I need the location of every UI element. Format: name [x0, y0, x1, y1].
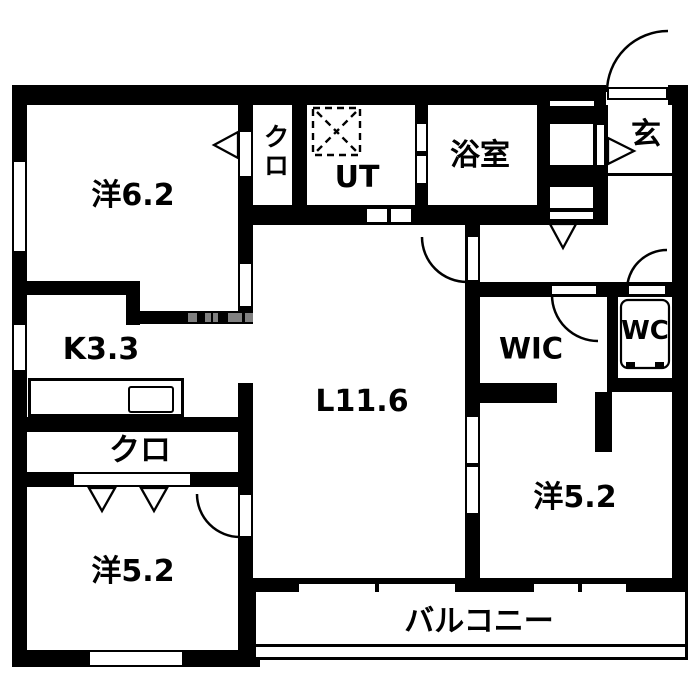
door-leaf — [238, 262, 253, 308]
door-leaf — [72, 472, 192, 487]
door-leaf — [389, 207, 413, 224]
entrance-door-arc — [607, 31, 668, 92]
door-leaf — [238, 130, 253, 178]
washing-machine-icon — [317, 112, 356, 151]
door-leaf — [415, 154, 428, 185]
room-label-entrance: 玄 — [631, 120, 661, 150]
opening-hatch-tick — [188, 313, 197, 322]
room-label-toilet: WC — [621, 318, 669, 344]
room-label-walk-in-closet: WIC — [499, 335, 563, 364]
door-leaf — [365, 207, 389, 224]
wall-segment — [595, 392, 612, 452]
door-leaf — [548, 210, 595, 221]
balcony-rail-line — [256, 644, 685, 647]
room-label-western-5-2-left: 洋5.2 — [91, 557, 174, 587]
door-leaf — [465, 415, 480, 465]
room-label-western-6-2: 洋6.2 — [91, 181, 174, 211]
floor-plan: 洋6.2 クロ UT 浴室 玄 K3.3 L11.6 WIC WC クロ 洋5.… — [0, 0, 700, 700]
room-label-kitchen: K3.3 — [63, 335, 139, 365]
bedroom-left-door-arc — [197, 494, 240, 537]
door-leaf — [465, 465, 480, 515]
wall-segment — [607, 378, 672, 392]
opening-hatch-tick — [213, 313, 218, 322]
opening-hatch-tick — [228, 313, 242, 322]
door-leaf — [548, 122, 595, 167]
window — [12, 160, 27, 253]
wall-segment — [27, 281, 140, 295]
wall-segment — [607, 173, 672, 176]
window — [88, 650, 184, 667]
door-leaf — [466, 235, 480, 282]
kitchen-sink — [128, 386, 174, 413]
washing-machine-icon — [317, 112, 356, 151]
wall-segment — [126, 281, 140, 325]
door-leaf — [415, 122, 428, 153]
toilet-icon — [626, 362, 635, 368]
closet-upper-door-triangle-icon — [214, 132, 238, 158]
hall-living-door-arc — [422, 237, 467, 282]
toilet-icon — [655, 362, 664, 368]
door-leaf — [627, 284, 667, 296]
wall-segment — [27, 417, 253, 432]
wall-segment — [672, 85, 688, 648]
closet-lower-fold-triangle-icon — [89, 488, 115, 511]
room-label-bathroom: 浴室 — [450, 141, 510, 171]
room-label-balcony: バルコニー — [404, 607, 553, 637]
room-label-utility: UT — [335, 163, 380, 193]
washing-machine-icon — [313, 108, 360, 155]
room-label-western-5-2-right: 洋5.2 — [533, 483, 616, 513]
door-leaf — [548, 185, 595, 210]
wall-segment — [238, 105, 253, 667]
door-leaf — [595, 123, 606, 167]
opening-hatch-tick — [205, 313, 211, 322]
door-leaf — [607, 87, 668, 100]
hall-cabinet-door-triangle-icon — [550, 224, 576, 248]
window — [548, 99, 596, 108]
room-label-closet-lower: クロ — [109, 436, 171, 467]
wall-opening — [238, 324, 253, 383]
door-leaf — [550, 284, 598, 296]
room-label-closet-upper: クロ — [261, 123, 287, 181]
door-leaf — [238, 493, 253, 538]
window — [12, 323, 27, 372]
opening-hatch-tick — [245, 313, 253, 322]
wall-segment — [465, 383, 557, 403]
room-label-living: L11.6 — [315, 387, 408, 417]
closet-lower-fold-triangle-icon — [141, 488, 167, 511]
